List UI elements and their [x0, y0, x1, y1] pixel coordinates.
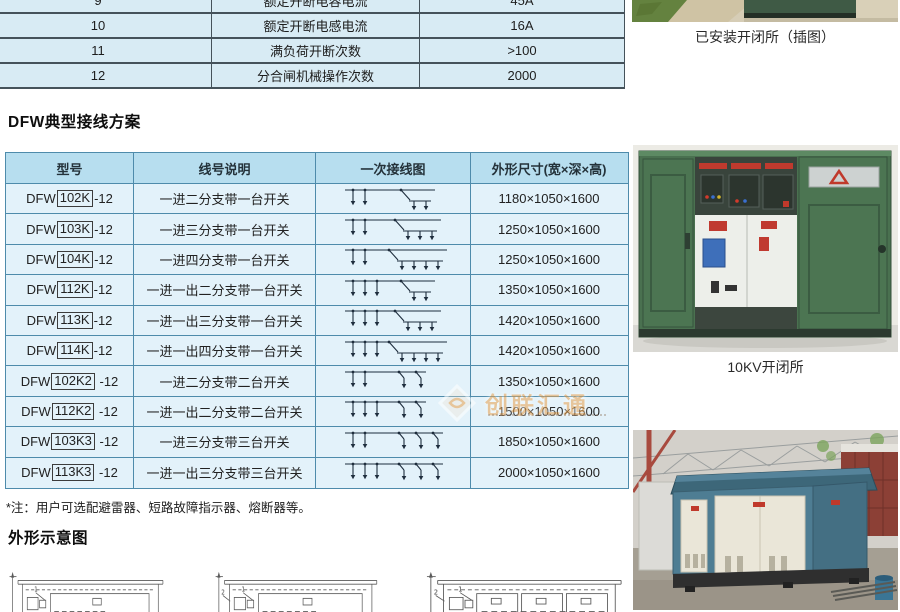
one-line-wiring-diagram	[316, 458, 471, 488]
photo-installed-station	[632, 0, 898, 22]
wiring-table-header: 型号 线号说明 一次接线图 外形尺寸(宽×深×高)	[6, 153, 628, 184]
line-description: 一进一出三分支带一台开关	[134, 306, 316, 335]
spec-row-number: 11	[0, 39, 212, 62]
col-header-dimensions: 外形尺寸(宽×深×高)	[471, 153, 627, 183]
dimensions-value: 1850×1050×1600	[471, 427, 627, 456]
model-prefix: DFW	[21, 434, 51, 449]
model-prefix: DFW	[21, 404, 51, 419]
line-description: 一进二分支带一台开关	[134, 184, 316, 213]
photo-10kv-station	[633, 145, 898, 352]
model-prefix: DFW	[27, 313, 57, 328]
spec-table: 9 额定开断电容电流 45A 10 额定开断电感电流 16A 11 满负荷开断次…	[0, 0, 625, 89]
model-cell: DFW102K-12	[6, 184, 134, 213]
outline-drawing-2: 12	[214, 570, 380, 612]
model-prefix: DFW	[27, 282, 57, 297]
line-description: 一进一出二分支带一台开关	[134, 275, 316, 304]
dimensions-value: 2000×1050×1600	[471, 458, 627, 488]
table-row: DFW112K-12 一进一出二分支带一台开关 1350×1050×1600	[6, 275, 628, 305]
photo-installed-station-image	[632, 0, 898, 22]
model-cell: DFW104K-12	[6, 245, 134, 274]
model-cell: DFW113K3 -12	[6, 458, 134, 488]
dimensions-value: 1180×1050×1600	[471, 184, 627, 213]
model-prefix: DFW	[21, 465, 51, 480]
table-row: DFW104K-12 一进四分支带一台开关 1250×1050×1600	[6, 245, 628, 275]
section-title-outline: 外形示意图	[8, 526, 88, 548]
wiring-scheme-table: 型号 线号说明 一次接线图 外形尺寸(宽×深×高) DFW102K-12 一进二…	[5, 152, 629, 489]
photo-workshop-substation	[633, 430, 898, 612]
outline-drawing-3: 12	[425, 570, 625, 612]
model-suffix: -12	[94, 252, 113, 267]
model-prefix: DFW	[27, 343, 57, 358]
model-cell: DFW103K3 -12	[6, 427, 134, 456]
table-row: DFW102K2 -12 一进二分支带二台开关 1350×1050×1600	[6, 366, 628, 396]
outline-drawing-1: 1	[8, 570, 166, 612]
model-code: 112K2	[52, 403, 95, 420]
model-code: 102K	[57, 190, 93, 207]
model-suffix: -12	[94, 343, 113, 358]
spec-row-name: 额定开断电感电流	[212, 14, 420, 37]
model-cell: DFW112K-12	[6, 275, 134, 304]
dimensions-value: 1350×1050×1600	[471, 366, 627, 395]
one-line-wiring-diagram	[316, 184, 471, 213]
spec-table-row: 12 分合闸机械操作次数 2000	[0, 62, 625, 87]
col-header-model: 型号	[6, 153, 134, 183]
spec-table-row: 9 额定开断电容电流 45A	[0, 0, 625, 12]
table-row: DFW103K-12 一进三分支带一台开关 1250×1050×1600	[6, 214, 628, 244]
model-suffix: -12	[95, 465, 117, 480]
model-prefix: DFW	[26, 252, 56, 267]
line-description: 一进二分支带二台开关	[134, 366, 316, 395]
model-prefix: DFW	[26, 222, 56, 237]
model-cell: DFW103K-12	[6, 214, 134, 243]
spec-row-number: 9	[0, 0, 212, 12]
one-line-wiring-diagram	[316, 427, 471, 456]
table-row: DFW114K-12 一进一出四分支带一台开关 1420×1050×1600	[6, 336, 628, 366]
spec-row-name: 额定开断电容电流	[212, 0, 420, 12]
model-code: 103K	[57, 221, 93, 238]
spec-row-value: 16A	[420, 14, 625, 37]
dimensions-value: 1420×1050×1600	[471, 306, 627, 335]
dimensions-value: 1250×1050×1600	[471, 214, 627, 243]
photo-10kv-caption: 10KV开闭所	[633, 357, 898, 377]
footnote: *注：用户可选配避雷器、短路故障指示器、熔断器等。	[6, 497, 311, 516]
model-code: 113K	[57, 312, 92, 329]
one-line-wiring-diagram	[316, 336, 471, 365]
col-header-line-desc: 线号说明	[134, 153, 316, 183]
model-code: 104K	[57, 251, 93, 268]
dimensions-value: 1250×1050×1600	[471, 245, 627, 274]
photo-installed-caption: 已安装开闭所（插图）	[632, 27, 898, 47]
spec-row-value: >100	[420, 39, 625, 62]
dimensions-value: 1350×1050×1600	[471, 275, 627, 304]
model-suffix: -12	[94, 313, 113, 328]
model-code: 113K3	[52, 464, 95, 481]
one-line-wiring-diagram	[316, 245, 471, 274]
model-cell: DFW114K-12	[6, 336, 134, 365]
model-suffix: -12	[96, 434, 118, 449]
line-description: 一进四分支带一台开关	[134, 245, 316, 274]
model-cell: DFW102K2 -12	[6, 366, 134, 395]
spec-row-name: 满负荷开断次数	[212, 39, 420, 62]
model-suffix: -12	[94, 222, 113, 237]
spec-row-value: 45A	[420, 0, 625, 12]
model-code: 114K	[57, 342, 92, 359]
one-line-wiring-diagram	[316, 275, 471, 304]
model-prefix: DFW	[26, 191, 56, 206]
line-description: 一进一出三分支带三台开关	[134, 458, 316, 488]
one-line-wiring-diagram	[316, 306, 471, 335]
col-header-diagram: 一次接线图	[316, 153, 471, 183]
dimensions-value: 1500×1050×1600	[471, 397, 627, 426]
model-cell: DFW112K2 -12	[6, 397, 134, 426]
model-suffix: -12	[94, 282, 113, 297]
spec-row-number: 10	[0, 14, 212, 37]
section-title-wiring: DFW典型接线方案	[8, 110, 141, 132]
spec-row-number: 12	[0, 64, 212, 87]
dimensions-value: 1420×1050×1600	[471, 336, 627, 365]
spec-row-value: 2000	[420, 64, 625, 87]
model-suffix: -12	[96, 374, 118, 389]
model-prefix: DFW	[21, 374, 51, 389]
table-row: DFW113K3 -12 一进一出三分支带三台开关 2000×1050×1600	[6, 458, 628, 488]
table-row: DFW103K3 -12 一进三分支带三台开关 1850×1050×1600	[6, 427, 628, 457]
spec-table-row: 11 满负荷开断次数 >100	[0, 37, 625, 62]
photo-workshop-substation-image	[633, 430, 898, 610]
line-description: 一进一出二分支带二台开关	[134, 397, 316, 426]
one-line-wiring-diagram	[316, 214, 471, 243]
one-line-wiring-diagram	[316, 397, 471, 426]
line-description: 一进三分支带三台开关	[134, 427, 316, 456]
wiring-table-body: DFW102K-12 一进二分支带一台开关 1180×1050×1600 DFW…	[6, 184, 628, 488]
spec-row-name: 分合闸机械操作次数	[212, 64, 420, 87]
model-code: 103K3	[51, 433, 95, 450]
table-row: DFW112K2 -12 一进一出二分支带二台开关 1500×1050×1600	[6, 397, 628, 427]
photo-10kv-station-image	[633, 145, 898, 352]
spec-table-row: 10 额定开断电感电流 16A	[0, 12, 625, 37]
model-code: 102K2	[51, 373, 95, 390]
model-suffix: -12	[94, 191, 113, 206]
model-suffix: -12	[95, 404, 117, 419]
one-line-wiring-diagram	[316, 366, 471, 395]
table-row: DFW113K-12 一进一出三分支带一台开关 1420×1050×1600	[6, 306, 628, 336]
catalog-page: 9 额定开断电容电流 45A 10 额定开断电感电流 16A 11 满负荷开断次…	[0, 0, 900, 612]
table-row: DFW102K-12 一进二分支带一台开关 1180×1050×1600	[6, 184, 628, 214]
model-code: 112K	[57, 281, 92, 298]
line-description: 一进一出四分支带一台开关	[134, 336, 316, 365]
line-description: 一进三分支带一台开关	[134, 214, 316, 243]
model-cell: DFW113K-12	[6, 306, 134, 335]
